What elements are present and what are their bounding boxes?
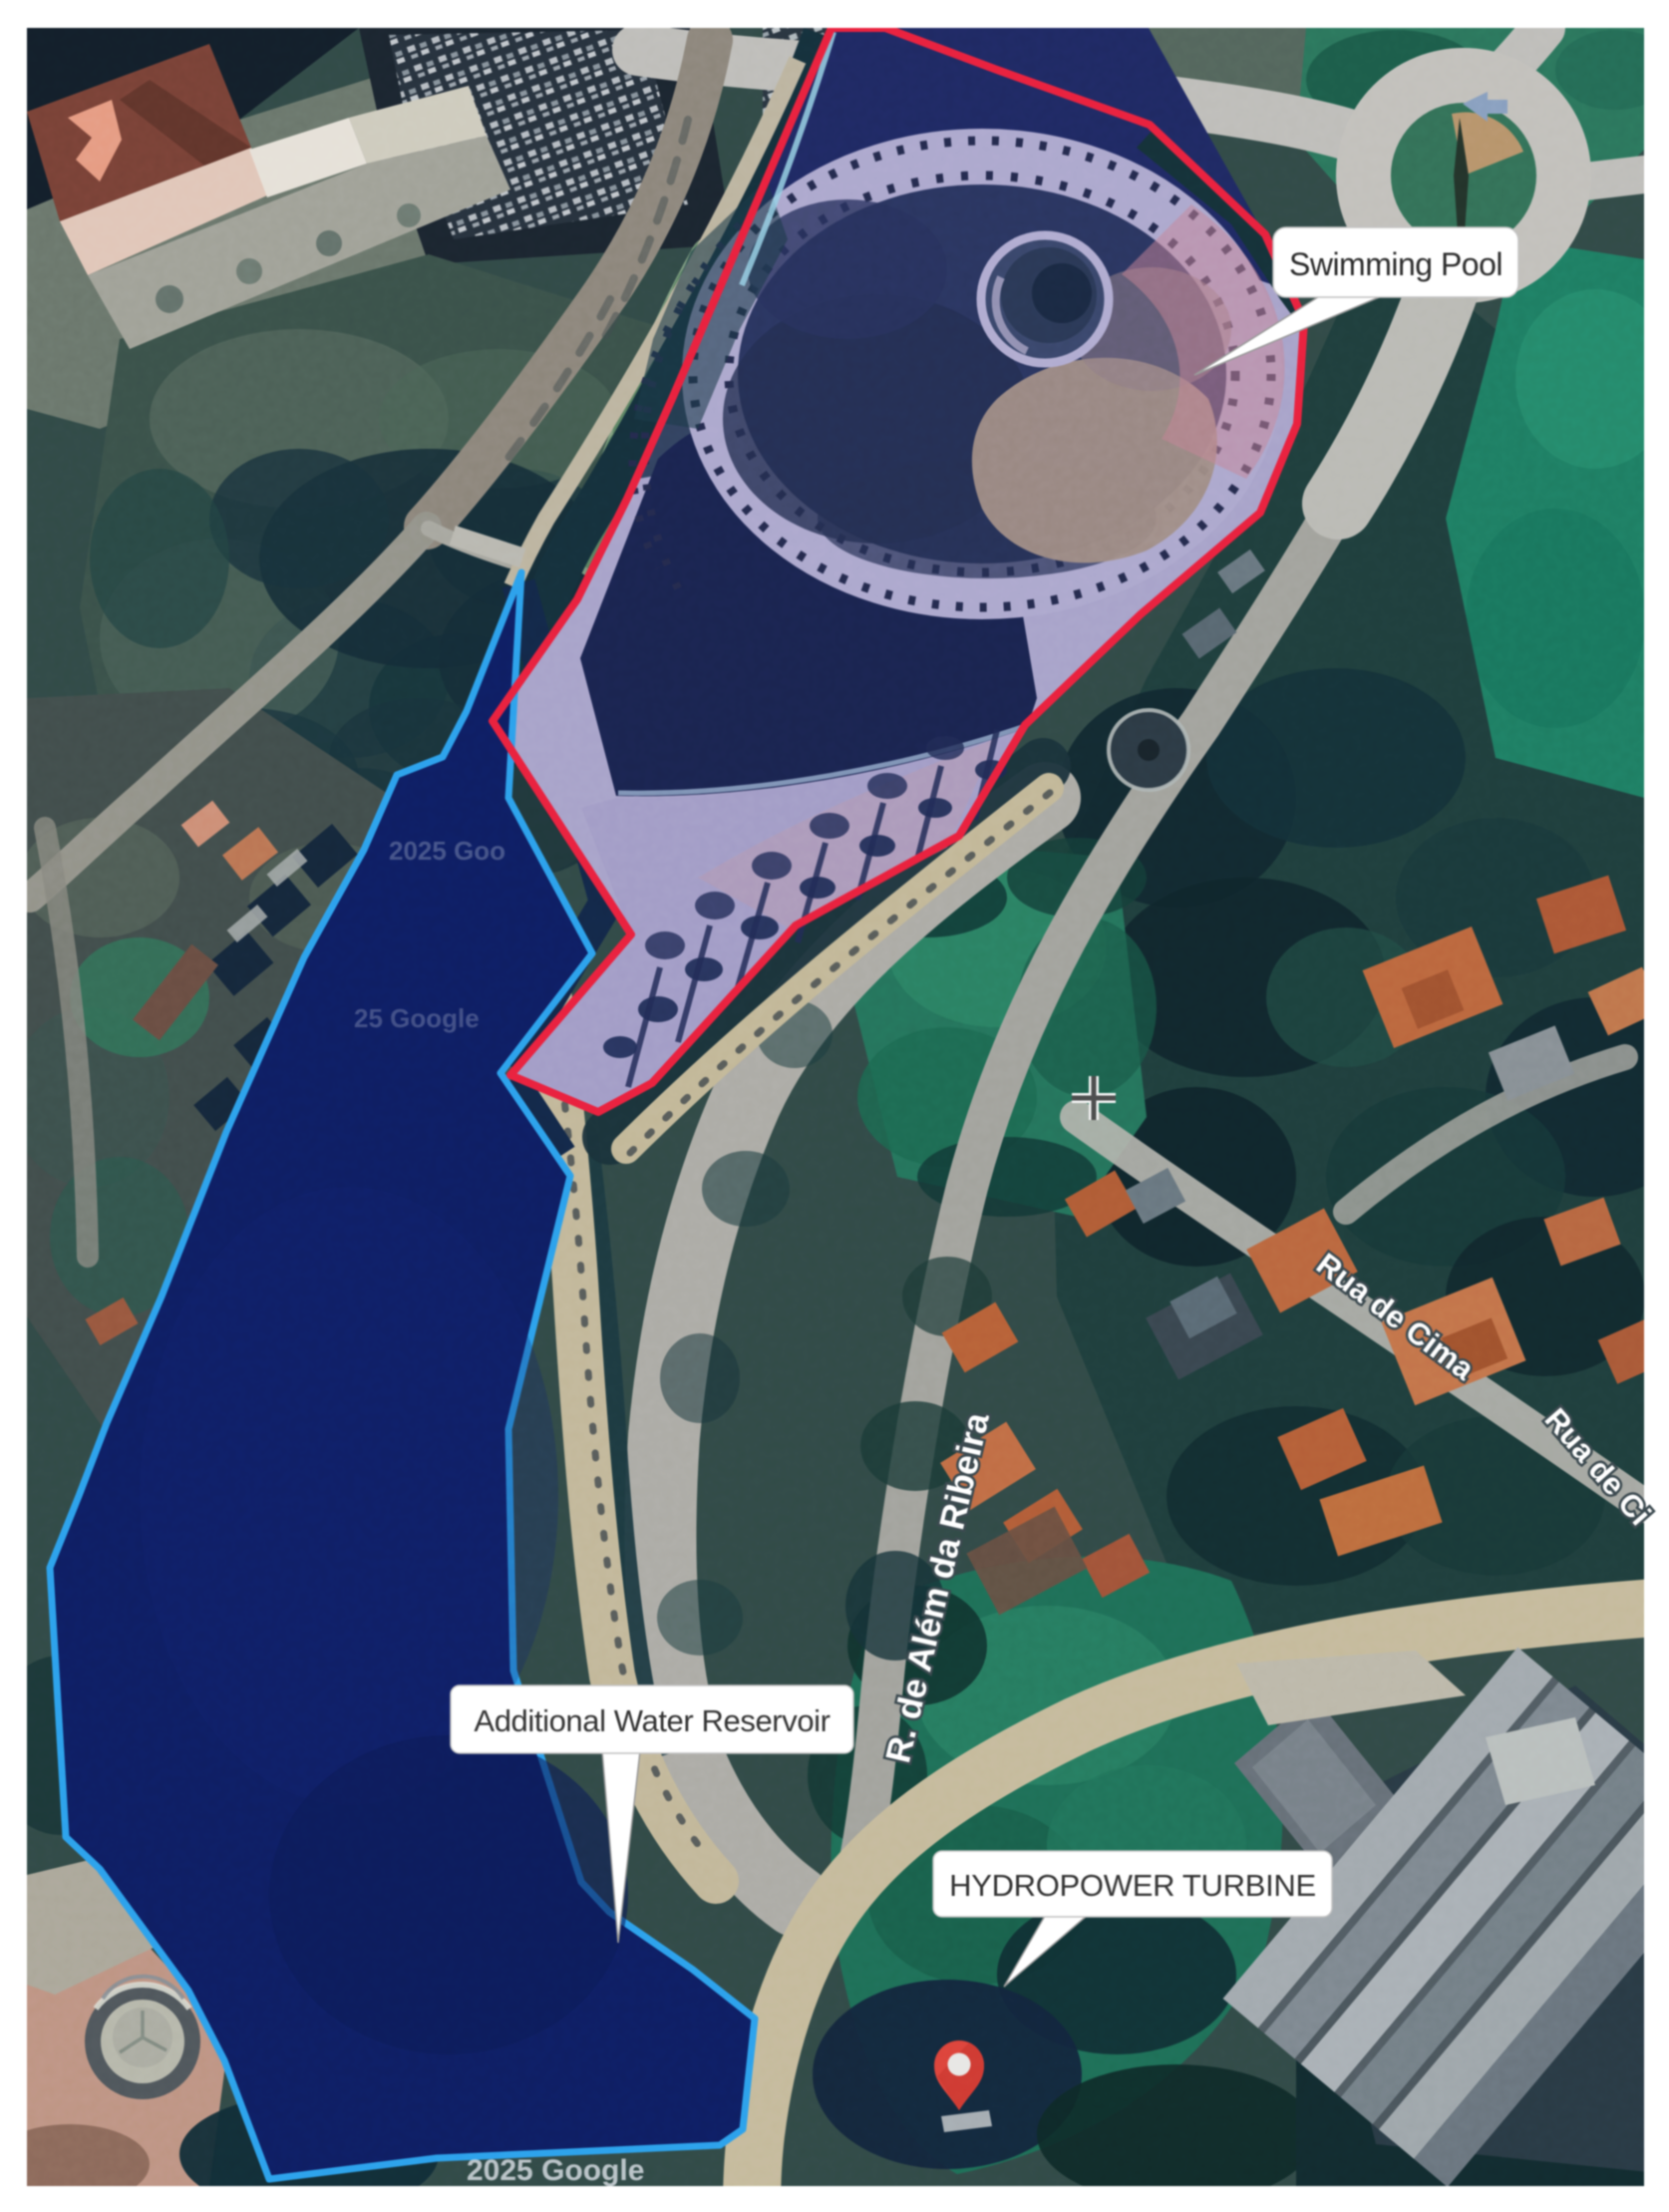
svg-text:Swimming Pool: Swimming Pool xyxy=(1289,246,1502,282)
svg-text:HYDROPOWER TURBINE: HYDROPOWER TURBINE xyxy=(949,1868,1316,1903)
svg-text:Additional Water Reservoir: Additional Water Reservoir xyxy=(474,1703,830,1738)
